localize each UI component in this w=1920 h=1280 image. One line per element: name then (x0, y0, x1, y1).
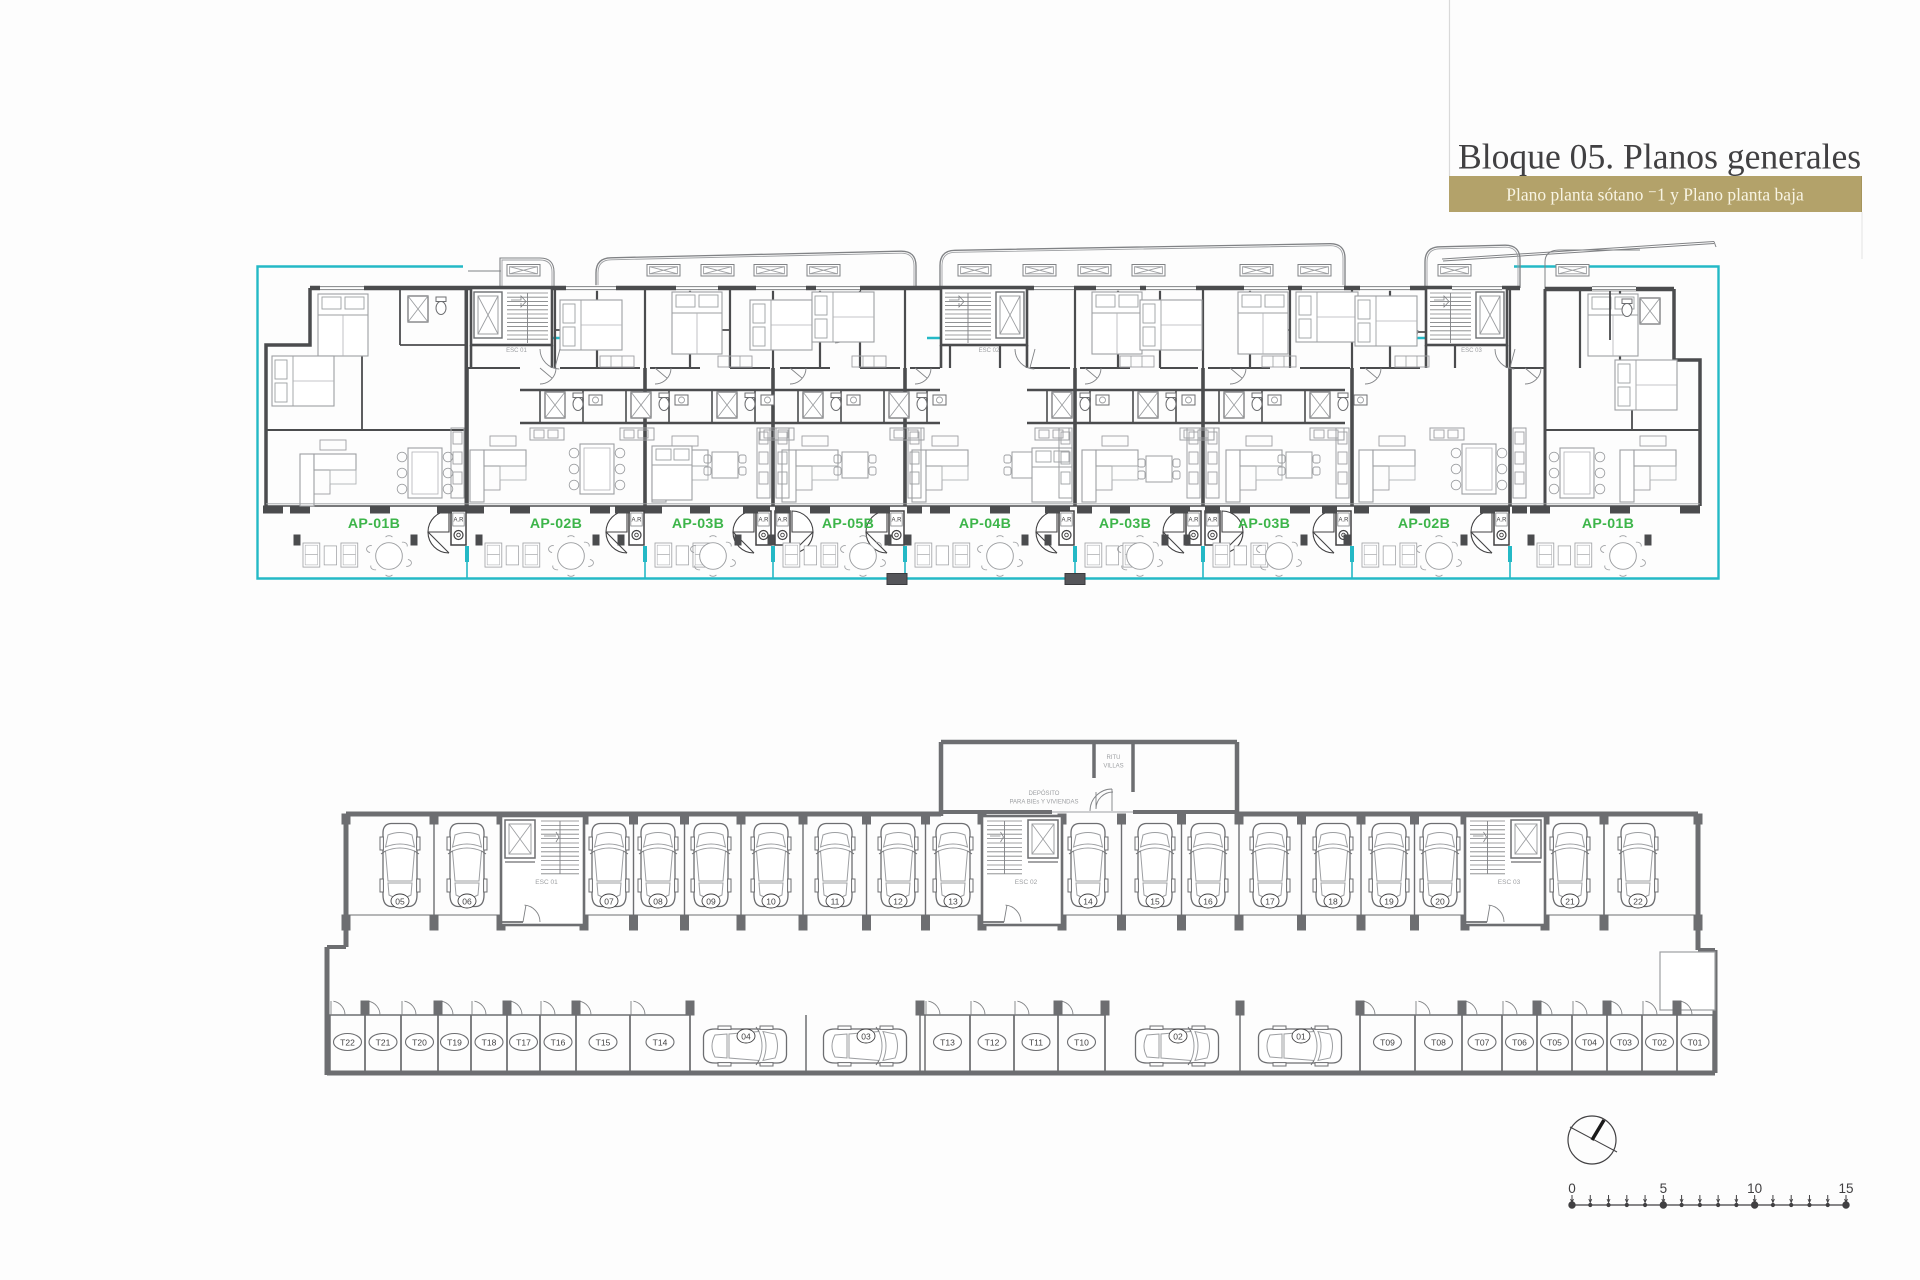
svg-text:AP-03B: AP-03B (672, 516, 724, 532)
svg-text:T09: T09 (1380, 1038, 1395, 1048)
svg-text:05: 05 (395, 897, 405, 907)
svg-text:T13: T13 (940, 1038, 955, 1048)
svg-text:20: 20 (1435, 897, 1445, 907)
svg-text:Plano planta sótano ⁻1 y Plano: Plano planta sótano ⁻1 y Plano planta ba… (1506, 185, 1804, 205)
svg-text:T16: T16 (551, 1038, 566, 1048)
svg-text:17: 17 (1265, 897, 1275, 907)
svg-text:AP-01B: AP-01B (348, 516, 400, 532)
svg-text:RITU: RITU (1107, 755, 1121, 761)
svg-text:T12: T12 (985, 1038, 1000, 1048)
svg-text:PARA BIEs Y VIVIENDAS: PARA BIEs Y VIVIENDAS (1009, 800, 1078, 806)
svg-text:T03: T03 (1617, 1038, 1632, 1048)
svg-text:16: 16 (1203, 897, 1213, 907)
svg-text:AP-02B: AP-02B (530, 516, 582, 532)
svg-text:T02: T02 (1652, 1038, 1667, 1048)
svg-text:T11: T11 (1029, 1038, 1043, 1048)
svg-text:T22: T22 (340, 1038, 355, 1048)
svg-text:T15: T15 (596, 1038, 611, 1048)
svg-text:T06: T06 (1512, 1038, 1527, 1048)
svg-text:13: 13 (948, 897, 958, 907)
svg-text:03: 03 (861, 1032, 871, 1042)
svg-text:ESC 02: ESC 02 (1015, 879, 1038, 886)
svg-text:12: 12 (893, 897, 903, 907)
svg-text:08: 08 (653, 897, 663, 907)
svg-text:AP-02B: AP-02B (1398, 516, 1450, 532)
svg-text:04: 04 (741, 1032, 751, 1042)
svg-text:AP-03B: AP-03B (1238, 516, 1290, 532)
svg-text:Bloque 05. Planos generales: Bloque 05. Planos generales (1458, 137, 1861, 177)
svg-text:11: 11 (831, 897, 840, 907)
svg-text:T20: T20 (412, 1038, 427, 1048)
svg-text:01: 01 (1296, 1032, 1306, 1042)
svg-text:T01: T01 (1688, 1038, 1703, 1048)
svg-text:ESC 01: ESC 01 (506, 348, 527, 354)
svg-text:ESC 01: ESC 01 (535, 879, 558, 886)
svg-text:06: 06 (462, 897, 472, 907)
svg-text:AP-05B: AP-05B (822, 516, 874, 532)
svg-text:22: 22 (1633, 897, 1643, 907)
svg-text:T08: T08 (1431, 1038, 1446, 1048)
svg-text:09: 09 (706, 897, 716, 907)
svg-text:10: 10 (1747, 1181, 1762, 1196)
svg-text:02: 02 (1173, 1032, 1183, 1042)
svg-text:07: 07 (604, 897, 614, 907)
svg-text:T19: T19 (447, 1038, 462, 1048)
svg-text:T04: T04 (1582, 1038, 1597, 1048)
svg-text:ESC 03: ESC 03 (1461, 348, 1482, 354)
svg-text:ESC 03: ESC 03 (1498, 879, 1521, 886)
svg-text:T10: T10 (1074, 1038, 1089, 1048)
svg-text:ESC 02: ESC 02 (979, 348, 1000, 354)
svg-text:14: 14 (1083, 897, 1093, 907)
svg-text:T07: T07 (1475, 1038, 1490, 1048)
svg-text:T21: T21 (376, 1038, 391, 1048)
svg-text:T14: T14 (653, 1038, 668, 1048)
svg-text:15: 15 (1150, 897, 1160, 907)
svg-text:5: 5 (1660, 1181, 1668, 1196)
svg-text:T18: T18 (482, 1038, 497, 1048)
svg-text:DEPÓSITO: DEPÓSITO (1029, 790, 1060, 797)
svg-text:10: 10 (766, 897, 776, 907)
svg-text:18: 18 (1328, 897, 1338, 907)
svg-text:T05: T05 (1547, 1038, 1562, 1048)
svg-text:VILLAS: VILLAS (1103, 764, 1123, 770)
svg-text:AP-01B: AP-01B (1582, 516, 1634, 532)
svg-text:19: 19 (1384, 897, 1394, 907)
svg-text:AP-03B: AP-03B (1099, 516, 1151, 532)
svg-text:21: 21 (1565, 897, 1575, 907)
svg-text:0: 0 (1568, 1181, 1576, 1196)
svg-text:T17: T17 (516, 1038, 531, 1048)
svg-text:AP-04B: AP-04B (959, 516, 1011, 532)
svg-text:15: 15 (1838, 1181, 1853, 1196)
